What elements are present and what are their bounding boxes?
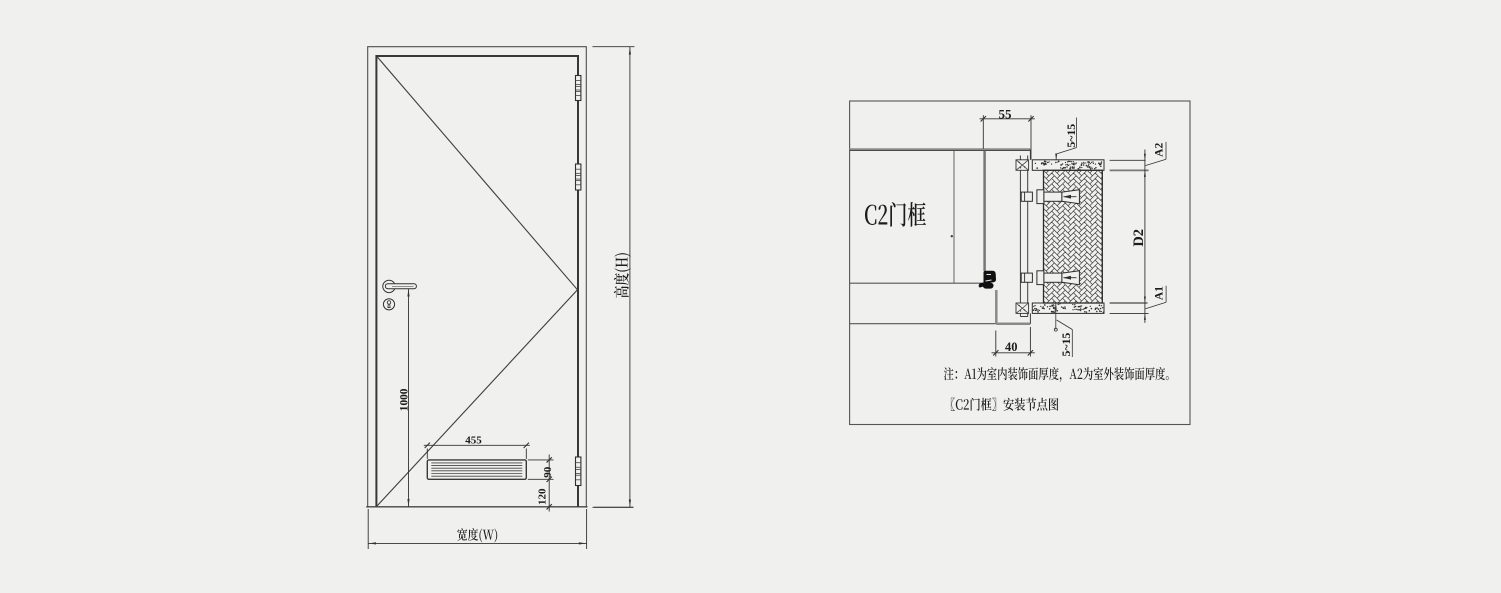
svg-text:5~15: 5~15 <box>1064 124 1078 148</box>
svg-text:A1: A1 <box>1154 286 1166 300</box>
svg-text:55: 55 <box>999 106 1013 121</box>
svg-text:40: 40 <box>1005 340 1018 354</box>
svg-text:D2: D2 <box>1131 229 1147 247</box>
svg-text:90: 90 <box>542 466 554 478</box>
svg-text:455: 455 <box>465 434 482 446</box>
svg-text:A2: A2 <box>1154 143 1166 157</box>
svg-text:5~15: 5~15 <box>1059 333 1073 357</box>
svg-text:1000: 1000 <box>398 388 410 411</box>
svg-text:120: 120 <box>537 488 549 505</box>
